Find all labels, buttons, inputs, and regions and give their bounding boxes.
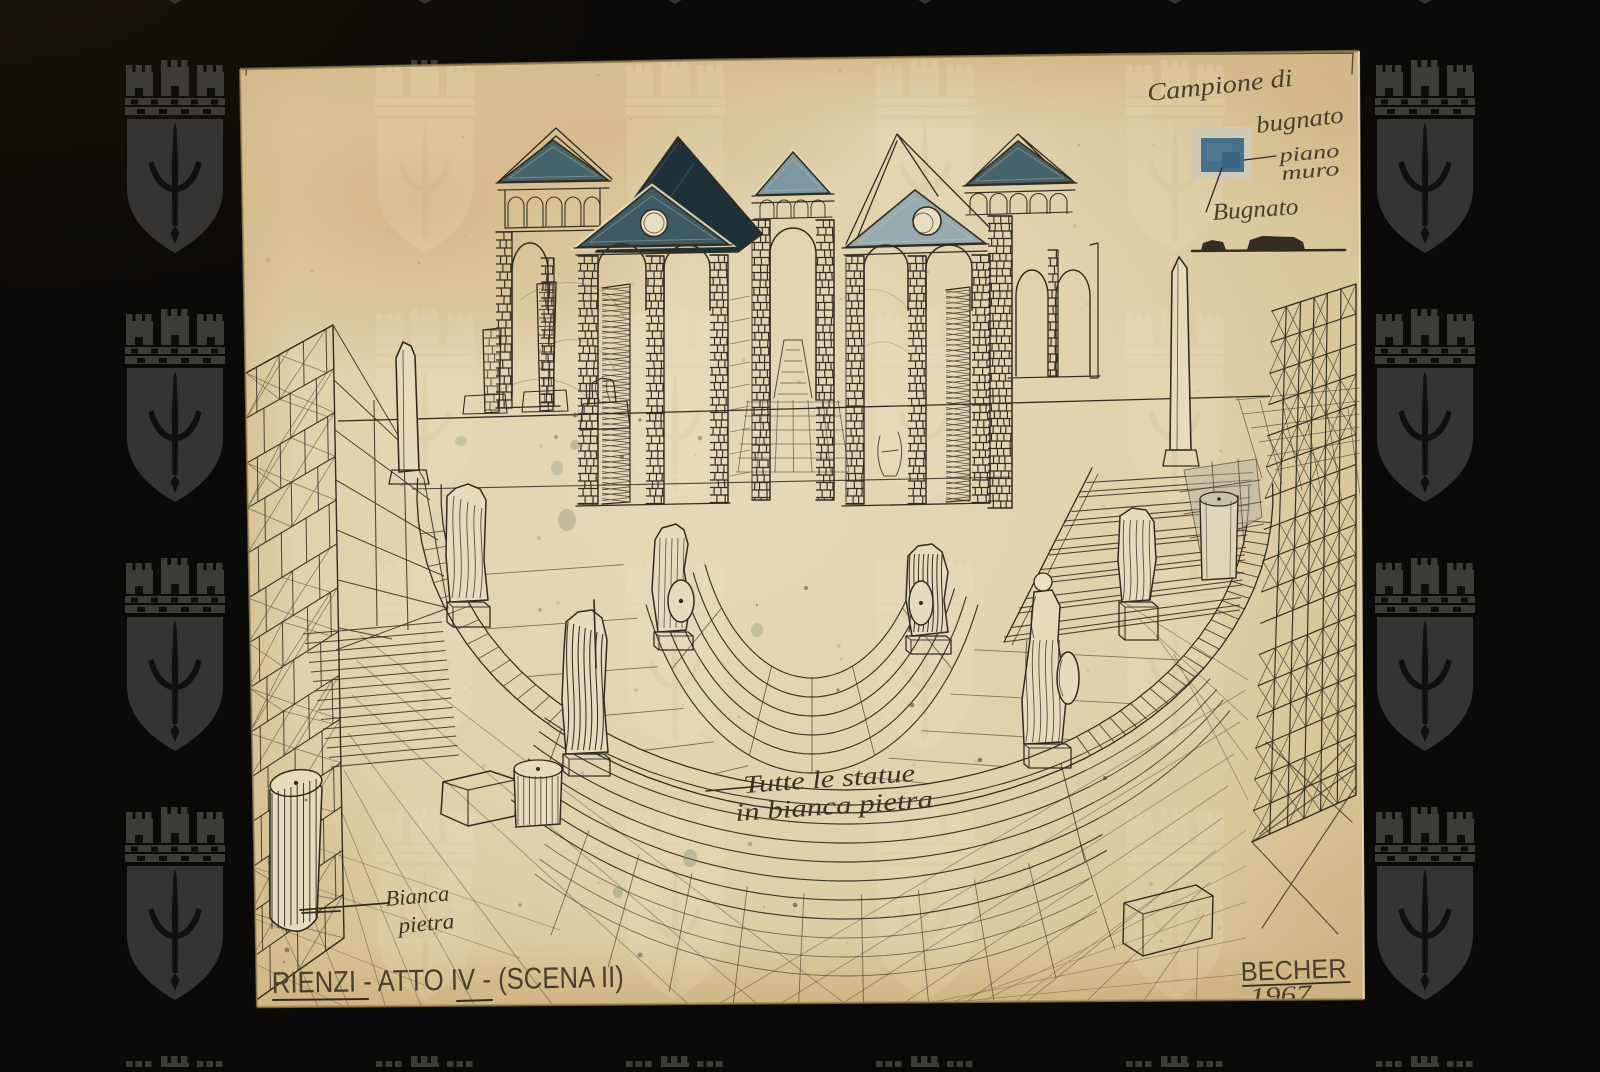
svg-text:pietra: pietra: [395, 908, 455, 938]
svg-text:RIENZI - ATTO IV - (SCENA II): RIENZI - ATTO IV - (SCENA II): [272, 961, 625, 1000]
